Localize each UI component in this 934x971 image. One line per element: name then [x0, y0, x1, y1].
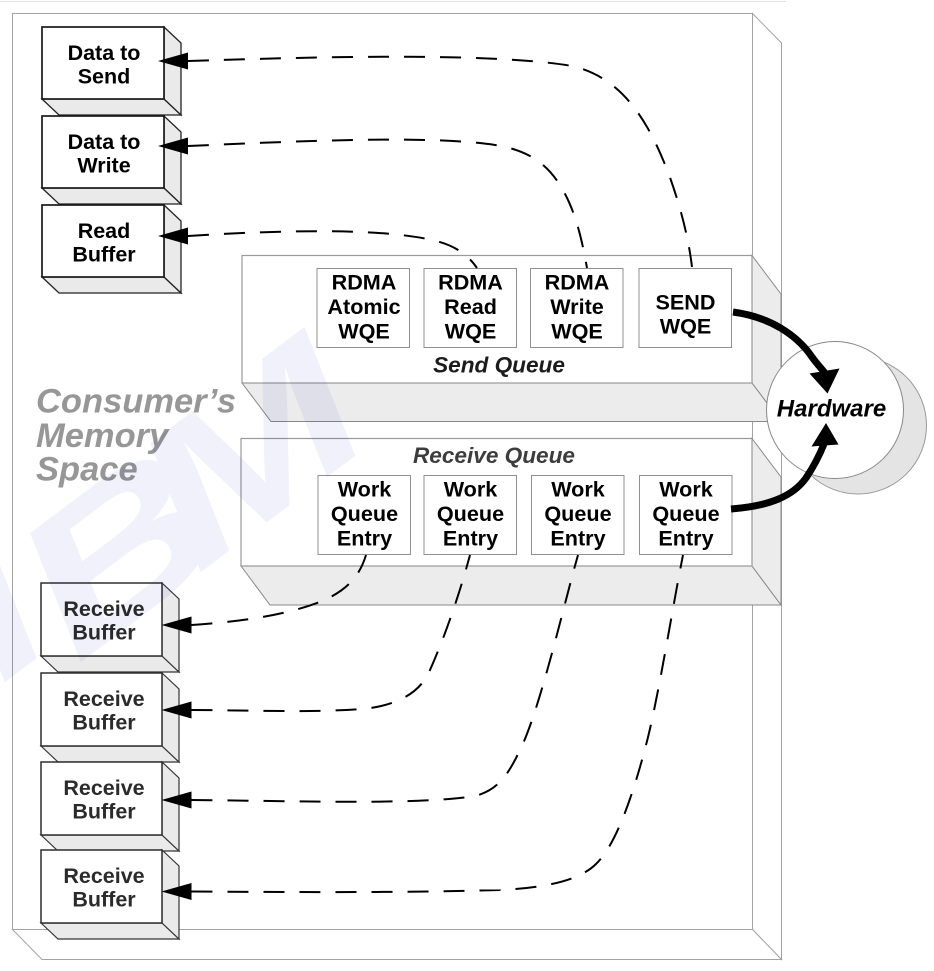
- svg-text:Data toWrite: Data toWrite: [68, 130, 141, 178]
- svg-text:ReceiveBuffer: ReceiveBuffer: [63, 864, 144, 911]
- svg-text:WorkQueueEntry: WorkQueueEntry: [652, 477, 719, 551]
- svg-text:ReceiveBuffer: ReceiveBuffer: [63, 776, 144, 823]
- svg-text:ReadBuffer: ReadBuffer: [72, 219, 136, 267]
- svg-text:WorkQueueEntry: WorkQueueEntry: [437, 477, 504, 551]
- svg-text:RDMAAtomicWQE: RDMAAtomicWQE: [327, 270, 400, 344]
- svg-text:RDMAWriteWQE: RDMAWriteWQE: [545, 270, 610, 344]
- svg-text:WorkQueueEntry: WorkQueueEntry: [544, 477, 611, 551]
- svg-text:SENDWQE: SENDWQE: [656, 290, 716, 339]
- svg-text:Data toSend: Data toSend: [68, 41, 141, 89]
- svg-text:RDMAReadWQE: RDMAReadWQE: [438, 270, 503, 344]
- svg-text:Receive Queue: Receive Queue: [413, 443, 575, 468]
- svg-text:Send Queue: Send Queue: [433, 353, 565, 378]
- svg-text:Hardware: Hardware: [777, 396, 886, 423]
